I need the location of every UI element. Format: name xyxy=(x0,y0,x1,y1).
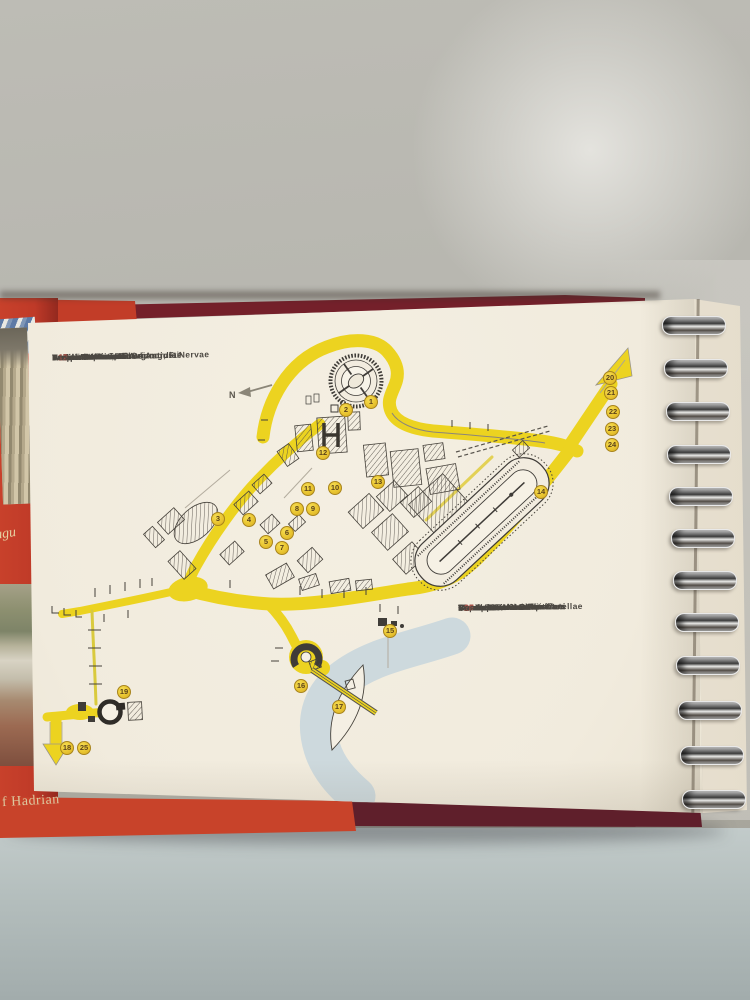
binding-ring xyxy=(676,656,740,675)
binding-ring xyxy=(666,402,730,421)
binding-ring xyxy=(667,445,731,464)
binding-ring xyxy=(664,359,728,378)
binding-ring xyxy=(671,529,735,548)
binding-ring xyxy=(673,571,737,590)
photo-of-open-guidebook: augu f Hadrian xyxy=(0,0,750,1000)
binding-ring xyxy=(680,746,744,765)
binding-ring xyxy=(682,790,746,809)
binding-ring xyxy=(669,487,733,506)
binding-ring xyxy=(678,701,742,720)
cover-top-shadow xyxy=(0,291,660,299)
binding-ring xyxy=(662,316,726,335)
binding-ring xyxy=(675,613,739,632)
spiral-binding xyxy=(0,0,750,1000)
